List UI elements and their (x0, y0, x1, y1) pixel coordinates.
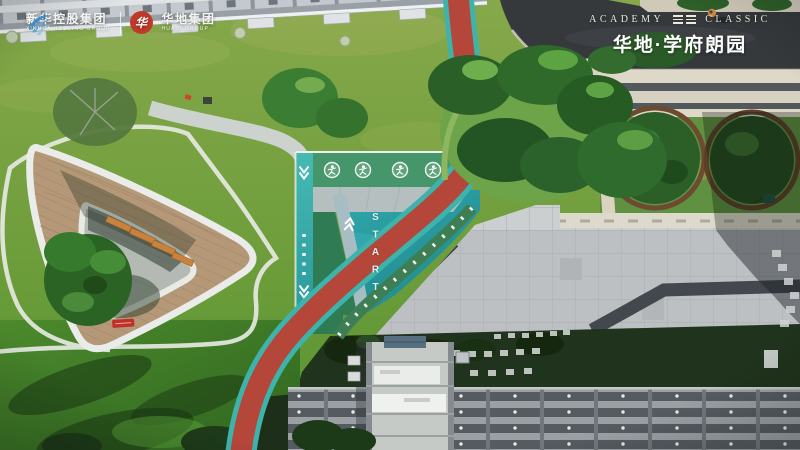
banner-tagline: ACADEMY CLASSIC (570, 14, 790, 25)
court-start-label: START (370, 212, 381, 300)
project-banner: ACADEMY CLASSIC 华地·学府朗园 (570, 14, 790, 57)
project-name: 华地·学府朗园 (570, 30, 790, 57)
banner-tagline-right: CLASSIC (705, 14, 771, 25)
logo-divider (120, 12, 121, 34)
huadi-logo-icon: 华 (130, 11, 153, 34)
huadi-logo-symbol: 华 (135, 14, 147, 31)
xinhua-name-en: XINHUA HOLDING GROUP (26, 27, 111, 32)
vignette (0, 0, 800, 450)
huadi-name-cn: 华地集团 (162, 13, 216, 25)
developer-logos: 新华控股集团 XINHUA HOLDING GROUP 华 华地集团 HUADI… (26, 11, 216, 34)
huadi-logo-text: 华地集团 HUADI GROUP (162, 13, 216, 33)
banner-tagline-left: ACADEMY (589, 14, 664, 25)
banner-emblem-icon (673, 15, 696, 24)
aerial-drone-photo: START 新华控股集团 XINHUA HOLDING GROUP 华 华地集团… (0, 0, 800, 450)
huadi-name-en: HUADI GROUP (162, 27, 216, 32)
aerial-scene (0, 0, 800, 450)
xinhua-logo-icon (26, 11, 53, 36)
